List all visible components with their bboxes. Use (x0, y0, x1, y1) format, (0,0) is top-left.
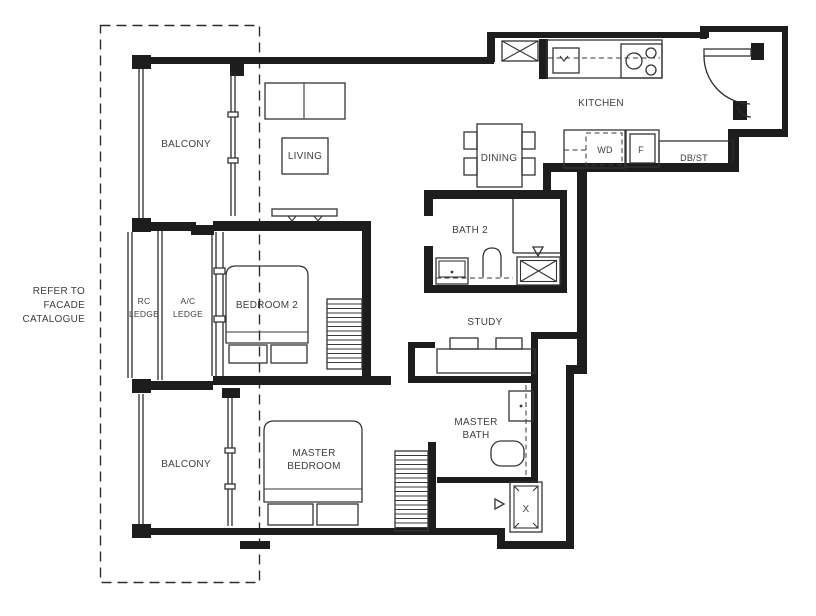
wall-segment (362, 221, 371, 376)
bath2-partition (513, 199, 560, 253)
floor-plan-drawing: REFER TO FACADE CATALOGUE (0, 0, 816, 616)
shower-head-symbol (495, 499, 504, 509)
facade-note-line3: CATALOGUE (23, 314, 86, 325)
sofa (265, 83, 345, 119)
wardrobe (327, 299, 362, 369)
tv-mounts (288, 216, 322, 221)
wall-segment (497, 541, 574, 549)
facade-note: REFER TO FACADE CATALOGUE (23, 286, 86, 325)
tv-console (272, 209, 337, 216)
study-furniture (437, 338, 535, 373)
label-shower-x: X (523, 504, 530, 515)
wall-segment (424, 190, 567, 199)
wall-segment (560, 199, 567, 285)
balcony-top-glazing (139, 69, 143, 218)
study-desk (437, 349, 535, 373)
facade-note-line2: FACADE (43, 300, 85, 311)
wall-segment (531, 332, 587, 339)
appliance-labels: WD F DB/ST X (523, 145, 709, 515)
pillar (222, 388, 240, 398)
pillar (132, 55, 151, 69)
dining-chair (464, 158, 477, 175)
room-label-master-bath-1: MASTER (454, 417, 497, 428)
floor-plan-page: REFER TO FACADE CATALOGUE (0, 0, 816, 616)
door-swing-arc (704, 56, 750, 104)
ledge-divider (158, 231, 162, 380)
label-db-st: DB/ST (680, 153, 708, 163)
shaft-cross (502, 41, 538, 61)
hob-burner-large (626, 53, 642, 69)
glazing-tick (228, 158, 238, 163)
shower-cross (521, 261, 557, 282)
room-label-master-bedroom-1: MASTER (292, 448, 335, 459)
wall-segment (408, 376, 538, 383)
bed-drawer (271, 345, 307, 363)
room-label-living: LIVING (288, 151, 322, 162)
wardrobe-hatch (327, 304, 362, 363)
room-label-bath2: BATH 2 (452, 225, 488, 236)
pillar (132, 218, 151, 232)
label-fridge: F (638, 145, 644, 155)
wd-counter (564, 130, 625, 168)
dining-chair (522, 132, 535, 149)
wall-segment (132, 57, 494, 64)
wall-segment (213, 376, 391, 385)
window-sill (214, 316, 225, 322)
wardrobe-hatch (395, 456, 428, 528)
bed-drawer (268, 504, 313, 525)
pillar (230, 64, 244, 76)
study-chair (450, 338, 478, 349)
wall-segment (213, 221, 371, 231)
label-ac-ledge-2: LEDGE (173, 309, 203, 319)
rc-ledge-edge (128, 232, 132, 378)
wall-segment (240, 541, 270, 549)
door-leaf (704, 49, 751, 56)
room-label-study: STUDY (467, 317, 502, 328)
hob-burner-small (646, 65, 656, 75)
wall-segment (424, 190, 433, 216)
bedroom2-window (216, 232, 223, 376)
wall-segment (151, 381, 213, 390)
room-label-master-bath-2: BATH (463, 430, 490, 441)
pillar (132, 379, 151, 393)
kitchen-counter (547, 40, 662, 78)
facade-note-line1: REFER TO (33, 286, 85, 297)
wardrobe (395, 451, 428, 531)
vanity-basin (439, 261, 465, 277)
window-sill (214, 268, 225, 274)
dining-chair (464, 132, 477, 149)
wall-segment (424, 285, 567, 293)
master-bedroom-furniture (264, 421, 428, 531)
wall-segment (531, 383, 538, 477)
room-label-balcony-top: BALCONY (161, 139, 211, 150)
label-rc-ledge-1: RC (138, 296, 151, 306)
room-label-bedroom2: BEDROOM 2 (236, 300, 298, 311)
wall-segment (148, 528, 505, 535)
study-chair (496, 338, 522, 349)
bed-drawer (229, 345, 267, 363)
door-jamb (751, 43, 764, 60)
wall-segment (191, 225, 214, 235)
label-rc-ledge-2: LEDGE (129, 309, 159, 319)
master-window (228, 398, 232, 526)
bedroom2-furniture (226, 266, 362, 369)
balcony-bottom-glazing (139, 394, 143, 524)
master-toilet (491, 441, 524, 466)
wall-segment (577, 172, 587, 372)
living-sliding-door (231, 71, 235, 216)
room-label-dining: DINING (481, 153, 518, 164)
room-label-master-bedroom-2: BEDROOM (287, 461, 340, 472)
kitchen-sink (553, 48, 579, 73)
shower-head-symbol (533, 247, 543, 256)
wall-segment (782, 26, 788, 136)
wall-segment (566, 365, 574, 548)
room-label-kitchen: KITCHEN (578, 98, 624, 109)
label-ac-ledge-1: A/C (181, 296, 196, 306)
wall-segment (700, 26, 788, 32)
wall-segment (487, 32, 709, 38)
master-vanity-drain (520, 405, 523, 408)
toilet (483, 248, 501, 277)
wall-segment (428, 442, 436, 533)
dining-chair (522, 158, 535, 175)
hob-burner-small (646, 48, 656, 58)
bed-drawer (317, 504, 358, 525)
wall-segment (151, 222, 196, 231)
glazing-tick (228, 112, 238, 117)
wall-segment (408, 342, 435, 348)
glazing-tick (225, 448, 235, 453)
glazing-tick (225, 484, 235, 489)
pillar (132, 524, 151, 538)
room-label-balcony-bottom: BALCONY (161, 459, 211, 470)
vanity-drain (451, 271, 454, 274)
label-washer-dryer: WD (597, 145, 613, 155)
